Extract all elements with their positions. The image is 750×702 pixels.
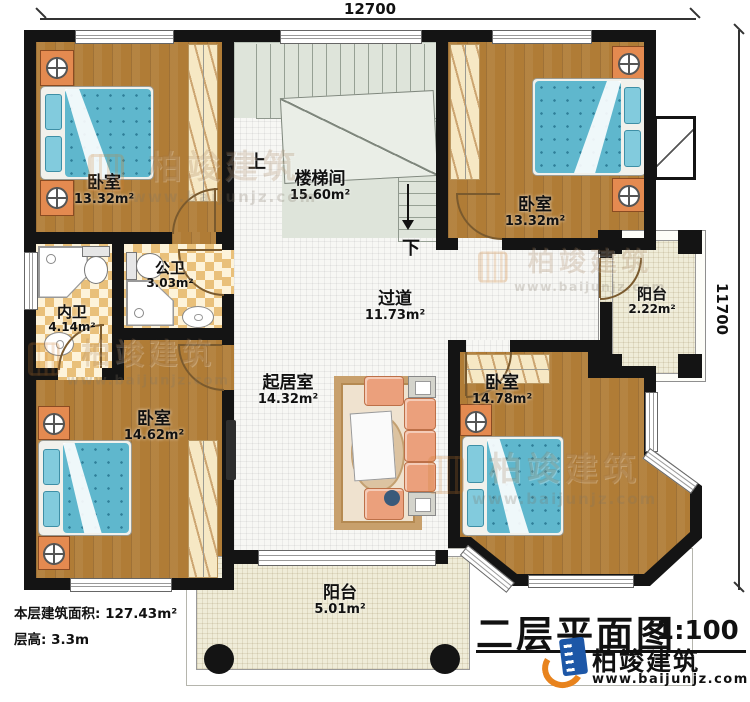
floor-area-text: 本层建筑面积: 127.43m² <box>14 602 177 622</box>
top-dimension-tick-left <box>35 7 46 18</box>
wall-segment <box>24 368 58 380</box>
pillow <box>624 130 641 168</box>
window <box>280 30 422 44</box>
wall-segment <box>448 238 458 250</box>
room-label-bedroom-tl: 卧室 13.32m² <box>54 174 154 208</box>
room-label-bedroom-br: 卧室 14.78m² <box>452 374 552 408</box>
lamp-icon <box>46 57 68 79</box>
balcony-right-post-br <box>678 354 702 378</box>
brand-logo-icon <box>542 638 588 688</box>
sofa-seat <box>404 462 436 492</box>
wall-segment <box>24 308 36 590</box>
bed <box>40 86 154 180</box>
window <box>70 578 172 592</box>
flue-shaft <box>654 116 696 180</box>
bed <box>462 436 564 536</box>
lamp-icon <box>618 185 640 207</box>
sofa-seat <box>404 430 436 462</box>
room-label-bath-inner: 内卫 4.14m² <box>30 304 114 334</box>
wall-segment <box>102 368 124 380</box>
wall-segment <box>170 578 234 590</box>
room-label-living: 起居室 14.32m² <box>238 374 338 408</box>
top-dimension-tick-right <box>689 7 700 18</box>
wall-segment <box>436 42 448 250</box>
pillow <box>467 445 484 483</box>
wardrobe <box>188 44 218 202</box>
stair-up-label: 上 <box>248 148 266 174</box>
room-label-bath-public: 公卫 3.03m² <box>128 260 212 290</box>
window <box>24 252 38 310</box>
balcony-right-post-tl <box>598 230 622 254</box>
floor-plan-canvas: 12700 11700 上 下 <box>0 0 750 702</box>
wall-segment <box>420 30 492 42</box>
nightstand <box>612 46 646 80</box>
wall-segment <box>590 30 656 42</box>
balcony-bottom-column-left <box>204 644 234 674</box>
lamp-icon <box>43 413 65 435</box>
window <box>492 30 592 44</box>
stair-down-label: 下 <box>402 234 420 260</box>
plant <box>384 490 400 506</box>
wall-segment <box>24 30 75 42</box>
pillow <box>624 87 641 125</box>
top-dimension-label: 12700 <box>300 0 440 18</box>
wall-segment <box>434 550 448 564</box>
wall-segment <box>222 232 234 250</box>
room-label-bedroom-bl: 卧室 14.62m² <box>104 410 204 444</box>
right-dimension-line <box>738 30 740 590</box>
lamp-icon <box>618 53 640 75</box>
door-leaf <box>178 344 222 346</box>
pillow <box>43 491 60 528</box>
lamp-icon <box>465 411 487 433</box>
door-leaf <box>178 249 222 251</box>
side-table <box>408 376 436 398</box>
bay-window <box>528 575 634 588</box>
room-label-balcony-bottom: 阳台 5.01m² <box>290 584 390 618</box>
balcony-right-post-bl <box>598 354 622 378</box>
wall-segment <box>172 30 280 42</box>
floor-height-text: 层高: 3.3m <box>14 628 89 648</box>
side-table <box>408 492 436 516</box>
coffee-table <box>350 411 397 482</box>
wall-segment <box>124 328 234 340</box>
wall-segment <box>24 232 172 244</box>
lamp-icon <box>43 543 65 565</box>
wall-segment <box>24 42 36 252</box>
brand-website: www.baijunjz.com <box>592 672 749 687</box>
toilet-bowl <box>84 256 108 284</box>
nightstand <box>40 50 74 86</box>
armchair <box>364 376 404 406</box>
pillow <box>43 449 60 486</box>
room-label-bedroom-tr: 卧室 13.32m² <box>485 196 585 230</box>
nightstand <box>38 406 70 440</box>
balcony-sliding-door <box>258 550 436 566</box>
sink <box>182 306 214 328</box>
bed <box>532 78 646 176</box>
nightstand <box>460 404 492 436</box>
sofa-seat <box>404 398 436 430</box>
pillow <box>467 489 484 527</box>
room-label-hallway: 过道 11.73m² <box>345 290 445 324</box>
wall-segment <box>222 390 234 578</box>
balcony-right-post-tr <box>678 230 702 254</box>
room-label-stairwell: 楼梯间 15.60m² <box>270 170 370 204</box>
nightstand <box>38 536 70 570</box>
pillow <box>45 94 62 130</box>
nightstand <box>612 178 646 212</box>
tv <box>226 420 236 480</box>
wall-segment <box>502 238 656 250</box>
window <box>75 30 174 44</box>
wardrobe <box>188 440 218 578</box>
bay-window <box>645 392 658 452</box>
door-leaf <box>214 188 216 232</box>
shower <box>38 246 88 298</box>
balcony-bottom-column-right <box>430 644 460 674</box>
wall-segment <box>234 550 258 564</box>
stair-down-arrow-head <box>402 220 414 230</box>
wall-segment <box>222 42 234 232</box>
door-leaf <box>456 193 500 195</box>
door-opening <box>466 340 510 352</box>
stair-down-arrow-line <box>407 184 409 220</box>
wall-segment <box>24 578 70 590</box>
bed <box>38 440 132 536</box>
room-label-balcony-right: 阳台 2.22m² <box>606 286 698 316</box>
door-leaf <box>599 258 601 298</box>
top-dimension-line <box>40 18 696 20</box>
wardrobe <box>450 44 480 180</box>
right-dimension-label: 11700 <box>713 279 731 339</box>
pillow <box>45 136 62 172</box>
